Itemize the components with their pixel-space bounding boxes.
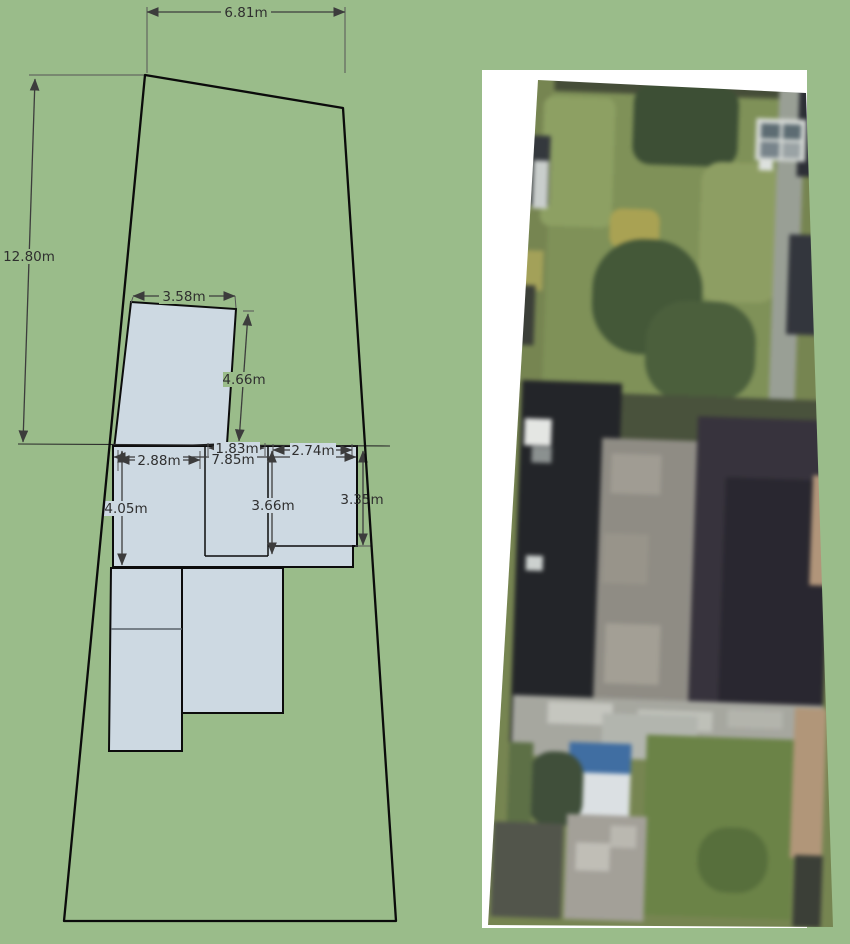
dim-label-room-b-depth: 3.66m — [251, 498, 294, 514]
dim-label-plot-depth: 12.80m — [3, 249, 55, 265]
aerial-patch-gray-block-left — [531, 446, 552, 463]
aerial-patch-path-speck-1 — [575, 842, 610, 871]
aerial-patch-lawn-dark-patch — [696, 827, 768, 894]
aerial-patch-roof-light-mottle-2 — [602, 533, 649, 585]
rear-extension-right — [182, 568, 283, 713]
aerial-patch-white-dot-left-2 — [526, 555, 544, 571]
aerial-patch-lawn-bottom — [641, 735, 797, 920]
aerial-patch-dark-tree-2 — [644, 299, 757, 403]
dim-label-room-c-width: 2.74m — [291, 443, 334, 459]
aerial-patch-greenhouse-pane-3 — [760, 141, 780, 158]
aerial-patch-patio-streak-3 — [727, 709, 783, 729]
dim-label-plot-width: 6.81m — [224, 5, 267, 21]
aerial-patch-right-tan-bottom — [790, 708, 827, 859]
dim-label-room-a-width: 2.88m — [137, 453, 180, 469]
aerial-patch-right-dark-bottom — [792, 855, 822, 928]
aerial-patch-path-speck-2 — [610, 825, 637, 848]
dim-label-outbuilding-width: 3.58m — [162, 289, 205, 305]
dim-label-house-total-width: 7.85m — [211, 452, 254, 468]
aerial-patch-roof-light-mottle-1 — [610, 453, 661, 495]
aerial-patch-greenhouse-pane-1 — [761, 123, 781, 139]
dim-label-outbuilding-depth: 4.66m — [222, 372, 265, 388]
aerial-patch-greenhouse-pane-4 — [782, 142, 801, 159]
aerial-patch-left-white-strip — [532, 160, 549, 208]
dim-label-room-a-depth: 4.05m — [104, 501, 147, 517]
dim-label-room-c-depth: 3.35m — [340, 492, 383, 508]
aerial-patch-greenhouse-pane-2 — [783, 124, 802, 140]
outbuilding-footprint — [114, 302, 236, 449]
aerial-patch-white-dot-right — [759, 160, 773, 170]
page-canvas: 6.81m 12.80m 3.58m 4.66m 2.88m 1.83m 7.8… — [0, 0, 850, 944]
aerial-photo — [480, 75, 842, 932]
aerial-patch-white-block-left — [524, 418, 552, 446]
aerial-patch-left-bottom-green — [507, 742, 534, 823]
aerial-patch-left-bottom-dark — [490, 821, 563, 918]
aerial-patch-roof-light-mottle-3 — [604, 623, 661, 685]
aerial-patch-lawn-bright — [697, 161, 782, 304]
aerial-patch-tree-shadow — [632, 84, 740, 168]
aerial-patch-shrubs-left — [540, 96, 616, 228]
rear-extension-left — [109, 568, 182, 751]
